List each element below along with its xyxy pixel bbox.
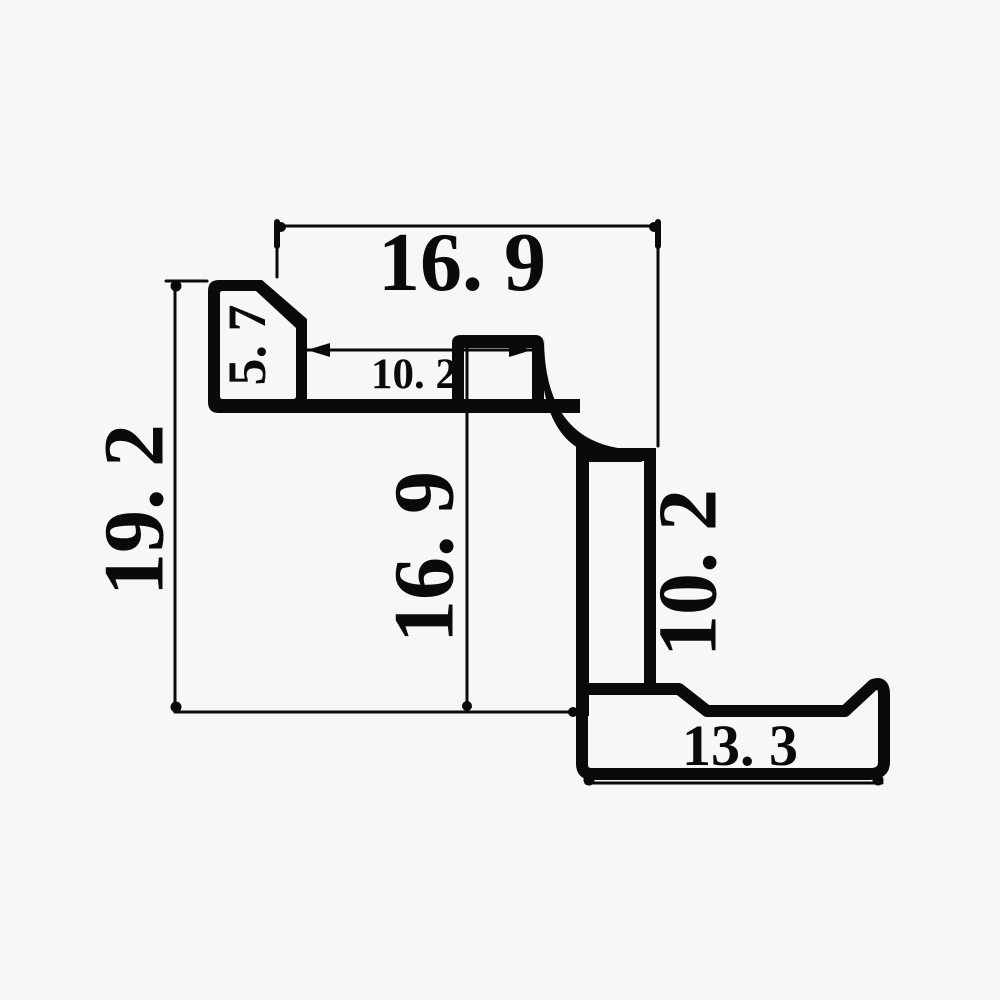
dim-dot <box>462 337 472 347</box>
dim-dot <box>645 676 656 687</box>
dim-dot <box>568 707 578 717</box>
profile-drawing: 16. 9 5. 7 10. 2 19. 2 16. 9 10. 2 13. 3 <box>0 0 1000 1000</box>
dim-dot <box>276 222 286 232</box>
dim-label-slot-width: 10. 2 <box>371 351 457 398</box>
dim-label-pocket-height: 5. 7 <box>217 305 277 386</box>
dim-label-web-height: 10. 2 <box>642 489 735 657</box>
dim-label-top-width: 16. 9 <box>378 216 546 309</box>
dim-dot <box>584 775 595 786</box>
dim-dot <box>649 222 659 232</box>
dim-dot <box>873 775 884 786</box>
dim-label-mid-height: 16. 9 <box>375 471 471 643</box>
dim-arrow-left <box>307 343 330 357</box>
technical-drawing-canvas: 16. 9 5. 7 10. 2 19. 2 16. 9 10. 2 13. 3 <box>0 0 1000 1000</box>
dim-dot <box>462 701 472 711</box>
dim-dot <box>171 281 182 292</box>
dim-dot <box>645 453 656 464</box>
dim-label-overall-height: 19. 2 <box>85 424 181 596</box>
dim-label-flange-width: 13. 3 <box>682 713 798 778</box>
